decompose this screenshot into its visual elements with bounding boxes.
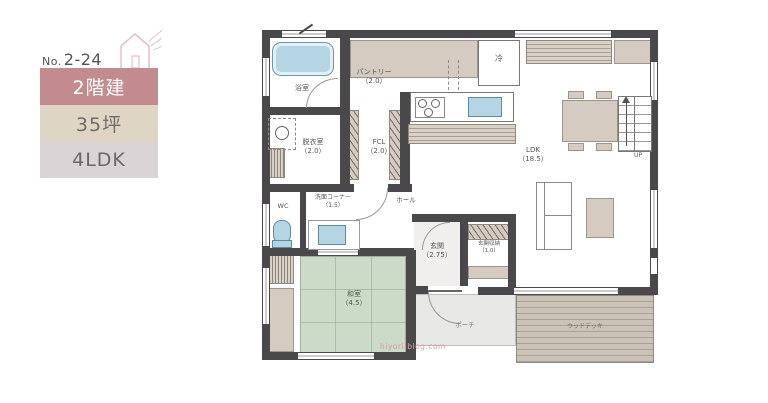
- wall-genkan-north: [412, 214, 516, 222]
- badge-area-label: 35坪: [76, 110, 122, 137]
- window-ldk-south: [514, 288, 618, 294]
- watermark: hiyori-blog.com: [380, 342, 446, 351]
- shoes-closet-rod: [468, 224, 510, 240]
- wall-bath-dressing: [264, 107, 342, 115]
- plan-number: No.2-24: [42, 50, 102, 69]
- sofa-backrest-line: [544, 182, 545, 250]
- window-ldk-north: [515, 31, 611, 37]
- badge-area: 35坪: [40, 105, 158, 142]
- stove-burner-1: [418, 99, 427, 108]
- shoes-closet-shelf: [468, 266, 510, 279]
- room-label-wash: 洗面コーナー（1.5）: [304, 194, 362, 210]
- wall-wash-top-a: [264, 184, 354, 192]
- window-wc-west: [263, 204, 269, 246]
- page: No.2-24 2階建 35坪 4LDK 冷: [0, 0, 768, 403]
- wash-basin: [318, 225, 346, 245]
- window-ldk-east-upper: [651, 62, 657, 100]
- sofa: [536, 182, 572, 250]
- wall-wash-top-b: [388, 184, 412, 192]
- room-label-bath: 浴室: [268, 84, 336, 93]
- dining-table: [562, 100, 618, 142]
- wall-genkan-south: [412, 286, 428, 294]
- stove-burner-2: [431, 99, 440, 108]
- badge-floors: 2階建: [40, 68, 158, 105]
- dining-chair-3: [568, 143, 584, 151]
- staircase-divider: [634, 96, 635, 152]
- washitsu-louver-storage: [266, 254, 294, 284]
- badge-layout: 4LDK: [40, 142, 158, 178]
- plan-number-value: 2-24: [64, 50, 102, 69]
- plan-number-prefix: No.: [42, 55, 62, 68]
- badge-floors-label: 2階建: [72, 73, 125, 100]
- sofa-cushion-line: [544, 215, 572, 216]
- floorplan: 冷: [262, 28, 662, 368]
- dining-chair-4: [596, 143, 612, 151]
- room-label-shoes: 玄関収納（1.0）: [464, 241, 514, 255]
- staircase: [618, 96, 652, 152]
- badge-layout-label: 4LDK: [72, 149, 126, 171]
- room-label-porch: ポーチ: [414, 321, 516, 329]
- pantry-opening-dash-1: [448, 60, 449, 90]
- window-ldk-east-lower: [651, 190, 657, 248]
- dining-chair-2: [596, 91, 612, 99]
- room-label-genkan: 玄関（2.75）: [412, 242, 462, 260]
- staircase-arrow-head: [622, 96, 630, 103]
- linen-shelf: [268, 148, 285, 178]
- stairs-up-label: UP: [628, 152, 648, 160]
- room-label-dressing: 脱衣室（2.0）: [284, 138, 342, 156]
- window-washitsu-south: [298, 353, 374, 359]
- room-label-wc: WC: [270, 202, 296, 210]
- window-washitsu-west: [263, 268, 269, 324]
- corner-cabinet: [614, 40, 652, 64]
- window-bath-north: [282, 31, 326, 37]
- dining-chair-1: [568, 91, 584, 99]
- staircase-arrow-line: [626, 102, 627, 146]
- kitchen-sink: [468, 97, 502, 117]
- room-label-pantry: パントリー（2.0）: [346, 68, 402, 86]
- room-label-washitsu: 和室（4.5）: [326, 290, 382, 308]
- room-label-deck: ウッドデッキ: [516, 323, 654, 331]
- room-label-hall: ホール: [388, 196, 424, 204]
- room-label-fcl: FCL（2.0）: [356, 138, 402, 156]
- door-ldk-east: [651, 258, 657, 274]
- living-table: [586, 198, 614, 238]
- toilet-tank: [272, 240, 292, 248]
- kitchen-island-front: [408, 124, 516, 144]
- washitsu-closet: [266, 288, 294, 352]
- room-label-ldk: LDK（18.5）: [502, 146, 564, 164]
- bathtub: [272, 42, 334, 76]
- window-bench: [526, 40, 612, 64]
- fridge-label: 冷: [478, 54, 520, 64]
- pantry-opening-dash-2: [458, 60, 459, 90]
- stove-burner-3: [424, 108, 433, 117]
